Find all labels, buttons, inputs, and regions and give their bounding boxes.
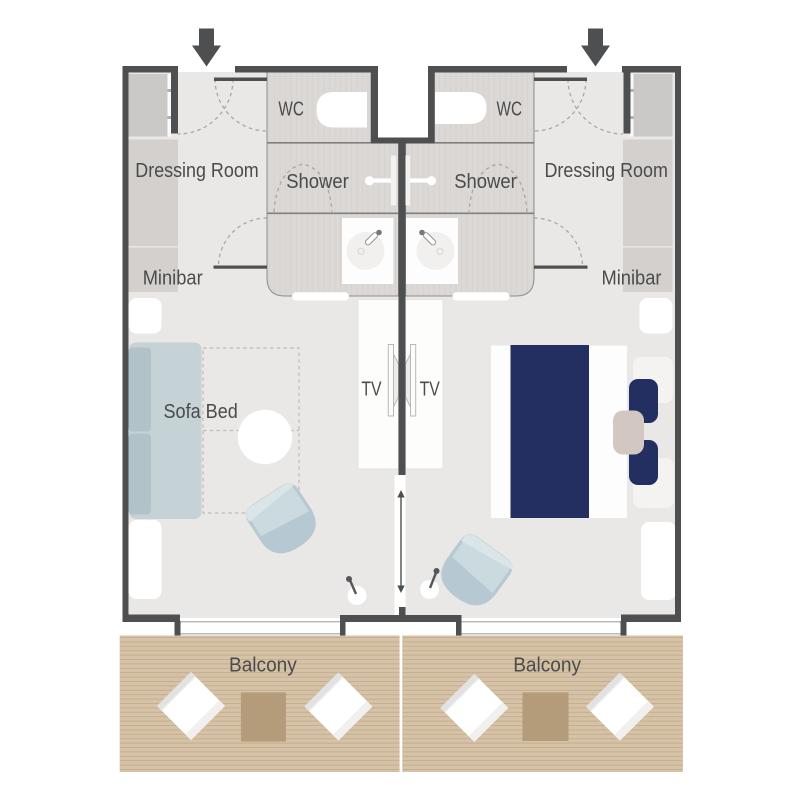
svg-text:Minibar: Minibar (602, 268, 662, 290)
svg-text:Dressing Room: Dressing Room (135, 160, 258, 182)
svg-text:Shower: Shower (286, 171, 349, 193)
svg-text:Shower: Shower (454, 171, 517, 193)
svg-text:WC: WC (278, 98, 304, 120)
svg-text:TV: TV (420, 379, 441, 401)
svg-text:WC: WC (497, 98, 523, 120)
svg-text:Sofa Bed: Sofa Bed (164, 401, 238, 423)
svg-text:Balcony: Balcony (229, 655, 297, 677)
svg-text:TV: TV (361, 379, 382, 401)
svg-text:Dressing Room: Dressing Room (545, 160, 668, 182)
svg-text:Minibar: Minibar (143, 268, 203, 290)
svg-text:Balcony: Balcony (513, 655, 581, 677)
